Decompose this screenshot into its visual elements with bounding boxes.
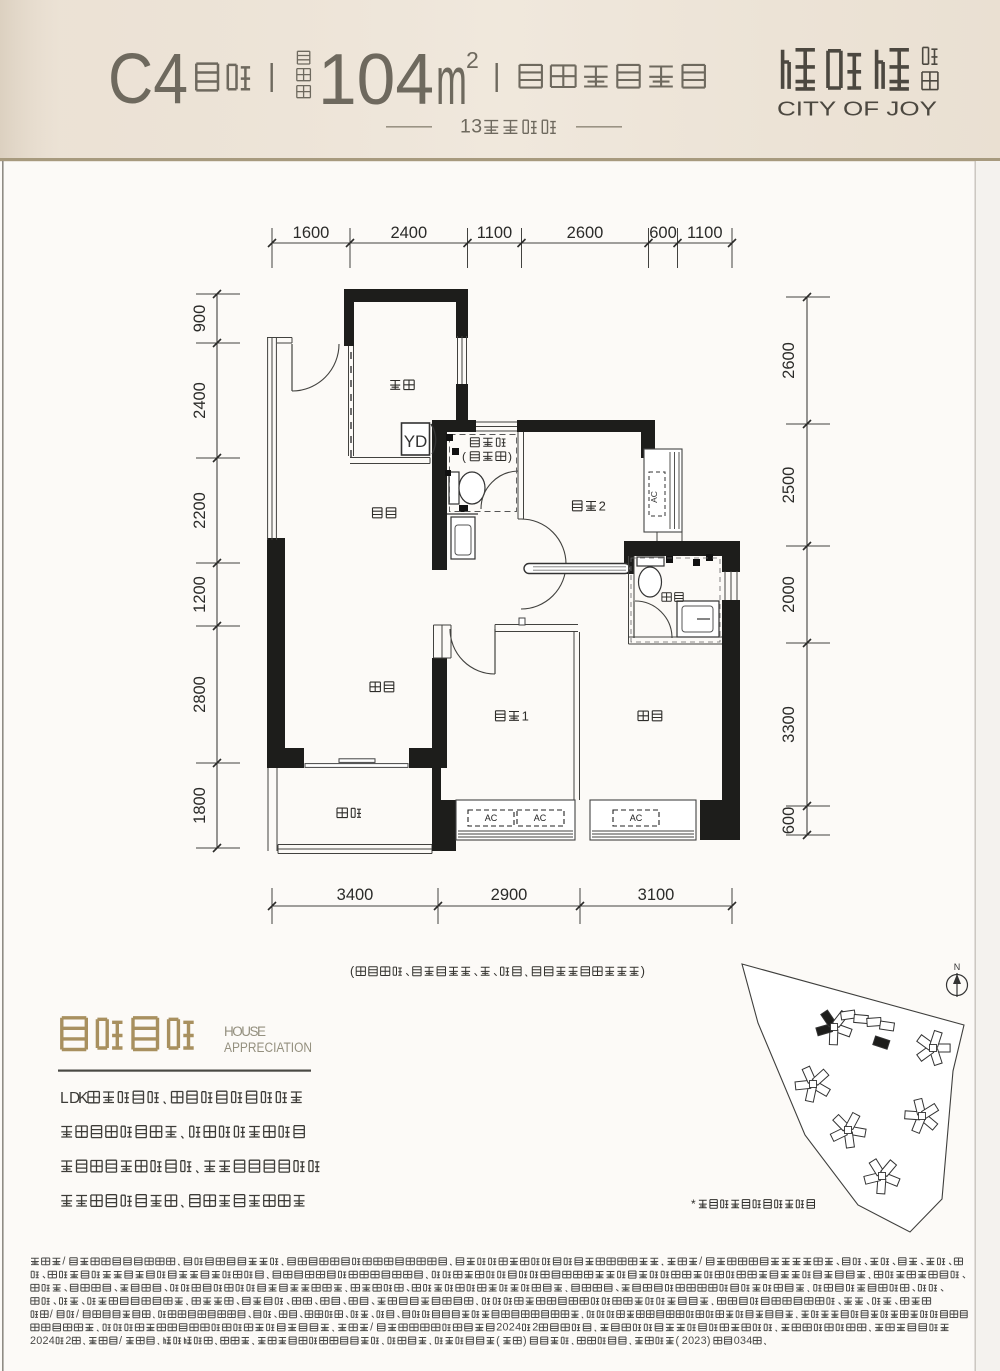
svg-text:): ) (641, 965, 645, 979)
svg-text:(: ( (350, 965, 355, 979)
svg-text:600: 600 (780, 807, 798, 835)
svg-text:): ) (508, 450, 512, 464)
svg-text:2: 2 (532, 1322, 538, 1334)
svg-text:AC: AC (534, 813, 547, 823)
svg-text:2000: 2000 (780, 576, 798, 613)
svg-text:0: 0 (688, 1335, 694, 1347)
svg-text:2800: 2800 (191, 676, 209, 713)
svg-text:(: ( (676, 1335, 680, 1347)
svg-text:AC: AC (649, 491, 659, 503)
svg-text:3100: 3100 (638, 886, 675, 904)
svg-text:0: 0 (36, 1335, 42, 1347)
svg-text:AC: AC (630, 813, 643, 823)
svg-text:C4: C4 (108, 40, 188, 119)
svg-text:2: 2 (599, 499, 606, 514)
svg-text:/: / (699, 1256, 702, 1268)
svg-text:YD: YD (404, 432, 428, 451)
svg-text:1200: 1200 (191, 576, 209, 613)
svg-text:3300: 3300 (780, 706, 798, 743)
svg-text:600: 600 (649, 224, 677, 242)
svg-text:2600: 2600 (780, 342, 798, 379)
svg-text:CITY OF JOY: CITY OF JOY (777, 99, 937, 121)
svg-text:4: 4 (515, 1322, 521, 1334)
svg-text:4: 4 (746, 1335, 752, 1347)
svg-text:1800: 1800 (191, 787, 209, 824)
svg-text:3: 3 (740, 1335, 746, 1347)
svg-text:2: 2 (682, 1335, 688, 1347)
svg-text:): ) (523, 1335, 527, 1347)
svg-text:1: 1 (460, 116, 471, 138)
svg-text:2: 2 (30, 1335, 36, 1347)
svg-text:2900: 2900 (491, 886, 528, 904)
svg-text:2500: 2500 (780, 467, 798, 504)
svg-text:L: L (60, 1090, 69, 1107)
svg-text:1100: 1100 (687, 224, 722, 242)
svg-text:AC: AC (485, 813, 498, 823)
svg-text:2: 2 (509, 1322, 515, 1334)
svg-text:APPRECIATION: APPRECIATION (224, 1040, 312, 1055)
svg-text:/: / (76, 1309, 79, 1321)
svg-text:): ) (707, 1335, 711, 1347)
svg-text:HOUSE: HOUSE (224, 1024, 266, 1039)
svg-text:1: 1 (522, 709, 529, 724)
svg-text:/: / (50, 1309, 53, 1321)
svg-text:1100: 1100 (477, 224, 512, 242)
svg-text:(: ( (496, 1335, 500, 1347)
svg-text:2400: 2400 (191, 382, 209, 419)
svg-text:N: N (954, 962, 961, 972)
svg-text:3: 3 (471, 116, 482, 138)
svg-text:0: 0 (734, 1335, 740, 1347)
svg-text:900: 900 (191, 305, 209, 333)
svg-text:2200: 2200 (191, 492, 209, 529)
svg-text:104: 104 (318, 40, 434, 120)
svg-text:2400: 2400 (390, 224, 427, 242)
svg-text:/: / (119, 1335, 122, 1347)
svg-text:/: / (370, 1322, 373, 1334)
svg-text:2: 2 (694, 1335, 700, 1347)
svg-text:/: / (62, 1256, 65, 1268)
svg-text:3400: 3400 (337, 886, 374, 904)
svg-text:2: 2 (466, 47, 479, 73)
svg-text:0: 0 (503, 1322, 509, 1334)
svg-text:*: * (691, 1197, 696, 1211)
svg-text:2600: 2600 (567, 224, 604, 242)
svg-text:4: 4 (49, 1335, 55, 1347)
svg-text:K: K (78, 1090, 89, 1107)
svg-text:(: ( (462, 450, 466, 464)
svg-text:2: 2 (496, 1322, 502, 1334)
svg-text:3: 3 (701, 1335, 707, 1347)
svg-text:2: 2 (43, 1335, 49, 1347)
svg-text:m: m (436, 43, 467, 119)
svg-text:2: 2 (65, 1335, 71, 1347)
svg-text:1600: 1600 (293, 224, 330, 242)
